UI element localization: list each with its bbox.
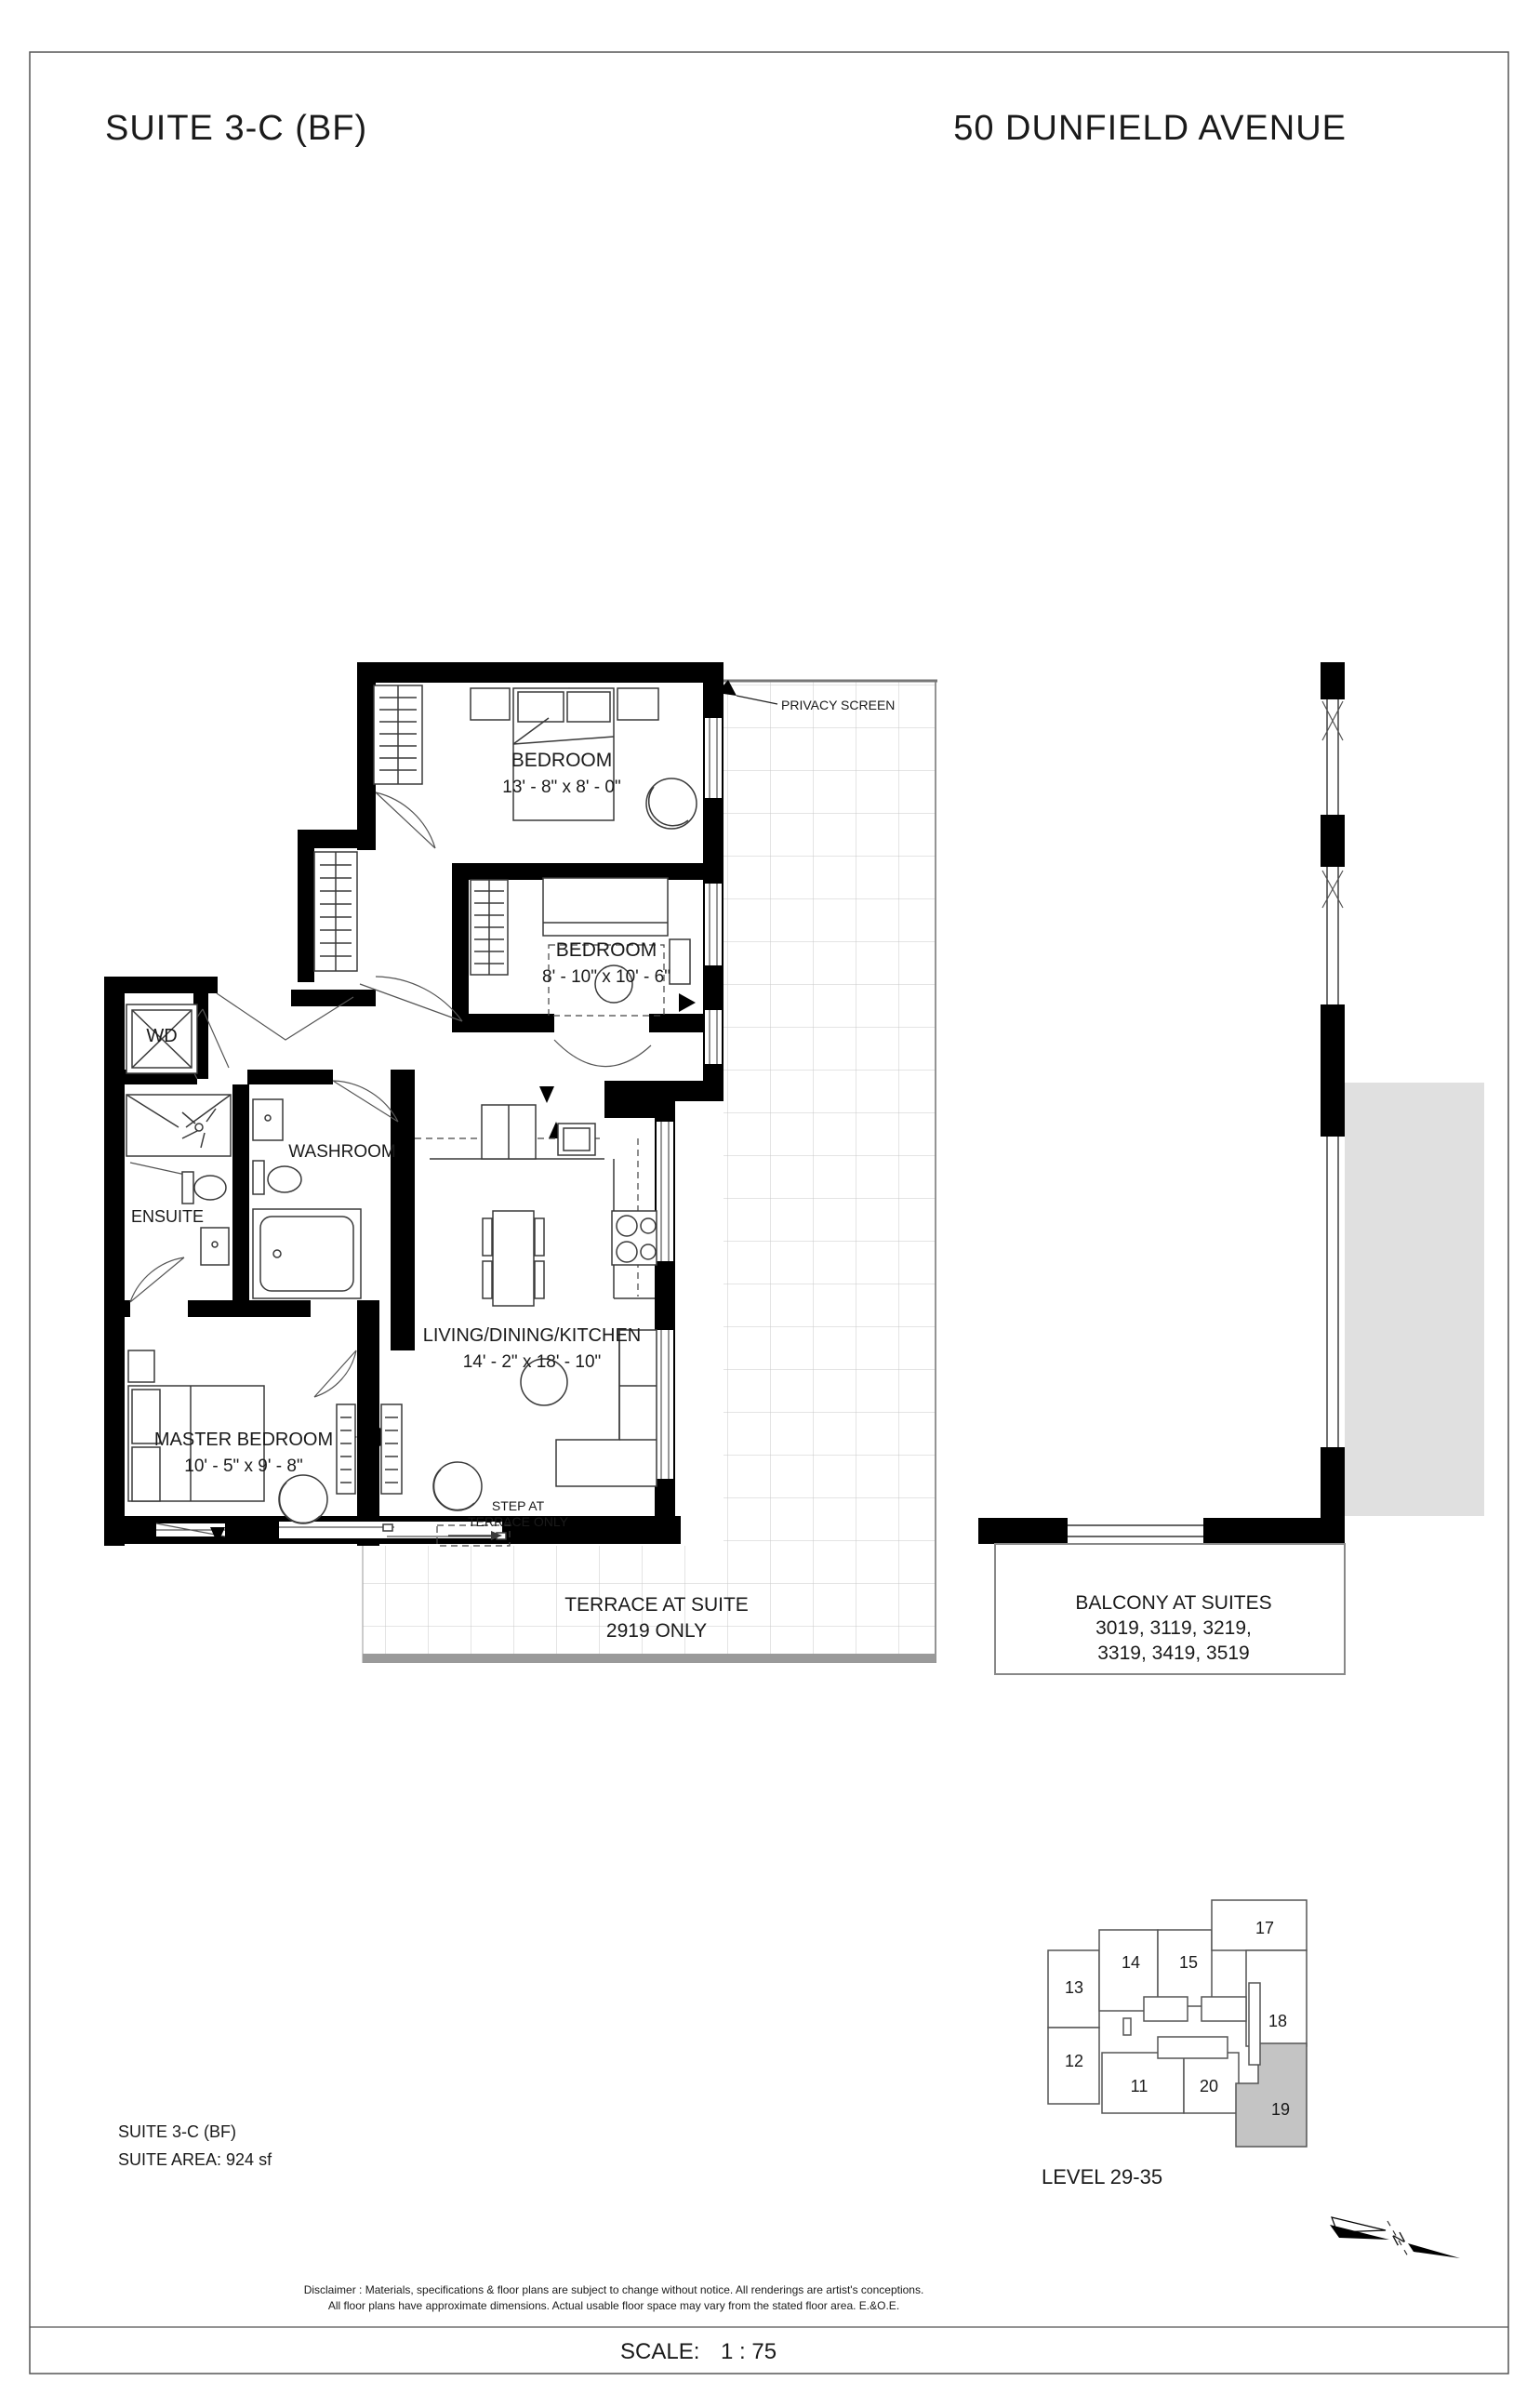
footer-suite-line: SUITE 3-C (BF) — [118, 2122, 236, 2141]
svg-text:BALCONY AT SUITES: BALCONY AT SUITES — [1075, 1592, 1271, 1614]
svg-text:3019, 3119, 3219,: 3019, 3119, 3219, — [1095, 1617, 1252, 1639]
balcony-label: BALCONY AT SUITES 3019, 3119, 3219, 3319… — [1075, 1592, 1271, 1664]
keyplan-unit-11: 11 — [1131, 2077, 1148, 2095]
wd-label: WD — [146, 1026, 177, 1046]
keyplan-unit-12: 12 — [1065, 2052, 1083, 2070]
keyplan-level-label: LEVEL 29-35 — [1042, 2165, 1162, 2188]
keyplan-unit-20: 20 — [1200, 2077, 1218, 2095]
keyplan-highlighted-unit — [1236, 2043, 1307, 2147]
keyplan-unit-15: 15 — [1179, 1953, 1198, 1972]
footer-area-line: SUITE AREA: 924 sf — [118, 2150, 272, 2169]
bedroom1-dims: 13' - 8" x 8' - 0" — [502, 778, 620, 797]
keyplan-unit-19: 19 — [1271, 2100, 1290, 2119]
north-label: N — [1389, 2228, 1408, 2250]
bedroom1-chair — [646, 778, 697, 829]
privacy-screen-label: PRIVACY SCREEN — [781, 698, 895, 712]
floorplan-page: SUITE 3-C (BF) 50 DUNFIELD AVENUE PRIVAC… — [0, 0, 1540, 2381]
svg-text:3319, 3419, 3519: 3319, 3419, 3519 — [1097, 1643, 1250, 1664]
keyplan-unit-17: 17 — [1255, 1919, 1274, 1937]
page-title: SUITE 3-C (BF) — [105, 109, 367, 148]
living-chair — [433, 1462, 482, 1510]
keyplan-unit-18: 18 — [1268, 2012, 1287, 2030]
keyplan-unit-14: 14 — [1122, 1953, 1140, 1972]
scale-label: SCALE: — [620, 2339, 699, 2364]
terrace-area — [363, 681, 937, 1663]
disclaimer-line-2: All floor plans have approximate dimensi… — [328, 2299, 899, 2312]
floorplan-drawing: SUITE 3-C (BF) 50 DUNFIELD AVENUE PRIVAC… — [0, 0, 1540, 2381]
hall-closet — [314, 852, 357, 971]
ensuite-fixtures — [126, 1095, 231, 1265]
dining-set — [483, 1211, 544, 1306]
scale-value: 1 : 75 — [721, 2339, 777, 2364]
bedroom1-closet — [374, 685, 422, 784]
master-dims: 10' - 5" x 9' - 8" — [184, 1457, 302, 1476]
north-arrow-icon: N — [1330, 2217, 1460, 2258]
bedroom2-closet — [471, 880, 508, 975]
ensuite-label: ENSUITE — [131, 1207, 204, 1226]
page-address: 50 DUNFIELD AVENUE — [953, 109, 1347, 148]
terrace-label-1: TERRACE AT SUITE — [564, 1594, 749, 1616]
terrace-label-2: 2919 ONLY — [606, 1620, 707, 1642]
keyplan: 13 14 15 17 18 12 11 20 19 LEVEL 29-35 — [1042, 1900, 1307, 2188]
bedroom2-label: BEDROOM — [556, 939, 657, 961]
master-chair — [279, 1475, 327, 1523]
bedroom2-dims: 8' - 10" x 10' - 6" — [542, 967, 670, 987]
adjacent-building — [978, 662, 1484, 1674]
disclaimer-line-1: Disclaimer : Materials, specifications &… — [304, 2283, 924, 2296]
master-label: MASTER BEDROOM — [154, 1430, 333, 1450]
living-dims: 14' - 2" x 18' - 10" — [463, 1352, 602, 1372]
washroom-label: WASHROOM — [288, 1142, 395, 1162]
living-label: LIVING/DINING/KITCHEN — [423, 1325, 641, 1346]
bedroom1-label: BEDROOM — [511, 750, 613, 771]
keyplan-unit-13: 13 — [1065, 1978, 1083, 1997]
step-label-2: TERRACE ONLY — [468, 1514, 569, 1529]
footer-info: SUITE 3-C (BF) SUITE AREA: 924 sf Discla… — [118, 2122, 923, 2364]
step-label-1: STEP AT — [492, 1498, 545, 1513]
washroom-fixtures — [253, 1099, 361, 1298]
